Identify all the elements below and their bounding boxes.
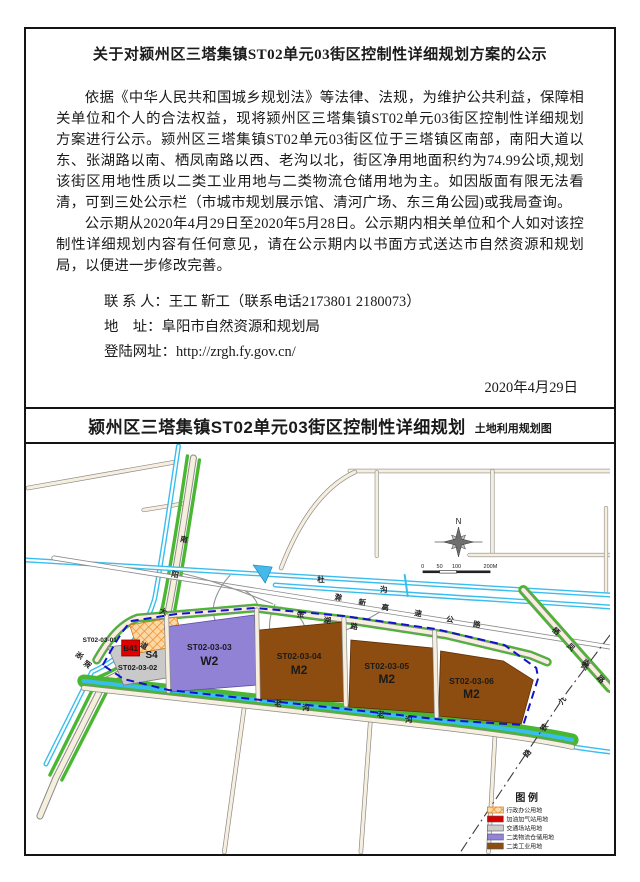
legend-swatch-admin bbox=[487, 807, 503, 813]
address-label: 地 址： bbox=[104, 319, 162, 335]
road-label-zhanghu-w2: 湖 bbox=[81, 658, 94, 670]
road-label-zhanghu-w1: 张 bbox=[74, 649, 86, 661]
notice-document: 关于对颍州区三塔集镇ST02单元03街区控制性详细规划方案的公示 依据《中华人民… bbox=[26, 29, 614, 407]
scale-seg-3 bbox=[457, 571, 491, 574]
scale-200: 200M bbox=[484, 564, 498, 570]
zone-m2-industry-3 bbox=[439, 651, 534, 724]
scale-bar: 0 50 100 200M bbox=[421, 564, 498, 573]
zone-04-code: ST02-03-04 bbox=[277, 651, 322, 661]
legend-label-gas: 加油加气站用地 bbox=[506, 815, 548, 823]
legend-swatch-industry bbox=[487, 843, 503, 849]
legend-swatch-warehouse bbox=[487, 834, 503, 840]
zone-01-code: ST02-03-01 bbox=[83, 637, 118, 644]
road-label-laogou-1: 老 bbox=[273, 698, 282, 708]
website-label: 登陆网址： bbox=[104, 344, 176, 360]
legend-title: 图 例 bbox=[515, 791, 538, 804]
notice-paragraph-2: 公示期从2020年4月29日至2020年5月28日。公示期内相关单位和个人如对该… bbox=[56, 214, 584, 277]
road-label-laogou-4: 沟 bbox=[405, 714, 412, 724]
zone-b41-label: B41 bbox=[123, 644, 138, 653]
zone-06-code: ST02-03-06 bbox=[449, 676, 494, 686]
river-label-2: 沟 bbox=[380, 584, 387, 594]
notice-title: 关于对颍州区三塔集镇ST02单元03街区控制性详细规划方案的公示 bbox=[46, 43, 594, 64]
website-value: http://zrgh.fy.gov.cn/ bbox=[176, 344, 296, 360]
contact-person-label: 联 系 人： bbox=[104, 294, 169, 310]
west-river bbox=[46, 446, 179, 764]
notice-page: 关于对颍州区三塔集镇ST02单元03街区控制性详细规划方案的公示 依据《中华人民… bbox=[24, 27, 616, 856]
map-subtitle: 土地利用规划图 bbox=[475, 420, 552, 436]
compass-cardinal-points bbox=[444, 527, 474, 557]
road-label-laogou-2: 沟 bbox=[302, 702, 309, 712]
legend-label-industry: 二类工业用地 bbox=[506, 842, 542, 850]
zone-s4-label: S4 bbox=[145, 650, 158, 661]
contact-person-line: 联 系 人：王工 靳工（联系电话2173801 2180073） bbox=[104, 290, 584, 315]
map-title: 颍州区三塔集镇ST02单元03街区控制性详细规划 bbox=[88, 413, 466, 438]
road-label-expressway-1: 滁 bbox=[334, 591, 343, 602]
contact-person-value: 王工 靳工（联系电话2173801 2180073） bbox=[169, 294, 421, 310]
compass-rose: N bbox=[435, 517, 483, 557]
scale-seg-1 bbox=[423, 571, 440, 574]
zone-04-type: M2 bbox=[291, 663, 308, 677]
contact-block: 联 系 人：王工 靳工（联系电话2173801 2180073） 地 址：阜阳市… bbox=[104, 290, 584, 365]
address-line: 地 址：阜阳市自然资源和规划局 bbox=[104, 315, 584, 340]
legend-label-warehouse: 二类物流仓储用地 bbox=[506, 833, 554, 841]
legend-swatch-transport bbox=[487, 825, 503, 831]
interchange-ramp bbox=[175, 572, 273, 604]
legend-label-transport: 交通场站用地 bbox=[506, 824, 542, 832]
zone-05-code: ST02-03-05 bbox=[364, 661, 409, 671]
road-label-railway-4: 路 bbox=[521, 747, 534, 759]
zone-06-type: M2 bbox=[463, 687, 480, 701]
zone-05-type: M2 bbox=[378, 672, 395, 686]
road-label-laogou-3: 老 bbox=[376, 709, 385, 719]
website-line: 登陆网址：http://zrgh.fy.gov.cn/ bbox=[104, 340, 584, 365]
scale-0: 0 bbox=[421, 564, 424, 570]
scale-seg-2 bbox=[440, 571, 457, 574]
road-label-railway-2: 九 bbox=[555, 694, 568, 707]
zone-03-code: ST02-03-03 bbox=[187, 642, 232, 652]
zone-02-code: ST02-03-02 bbox=[118, 663, 157, 672]
notice-date: 2020年4月29日 bbox=[26, 376, 578, 397]
road-label-zhanghu-3: 路 bbox=[350, 621, 359, 632]
scale-50: 50 bbox=[437, 564, 443, 570]
map-title-bar: 颍州区三塔集镇ST02单元03街区控制性详细规划 土地利用规划图 bbox=[26, 407, 614, 444]
compass-north-label: N bbox=[456, 517, 462, 526]
legend-label-admin: 行政办公用地 bbox=[506, 806, 542, 814]
legend-swatch-gas bbox=[487, 816, 503, 822]
map-legend: 图 例 行政办公用地 加油加气站用地 交通场站用地 二类物流仓储用地 二类工业用… bbox=[487, 791, 554, 851]
address-value: 阜阳市自然资源和规划局 bbox=[162, 319, 320, 335]
map-canvas: ST02-03-01 B41 S4 ST02-03-02 ST02-03-03 … bbox=[26, 444, 610, 854]
zone-03-type: W2 bbox=[200, 654, 218, 668]
river-label-1: 杜 bbox=[317, 574, 325, 584]
scale-100: 100 bbox=[452, 564, 461, 570]
land-use-map: ST02-03-01 B41 S4 ST02-03-02 ST02-03-03 … bbox=[26, 444, 614, 854]
notice-paragraph-1: 依据《中华人民共和国城乡规划法》等法律、法规，为维护公共利益，保障相关单位和个人… bbox=[56, 88, 584, 214]
